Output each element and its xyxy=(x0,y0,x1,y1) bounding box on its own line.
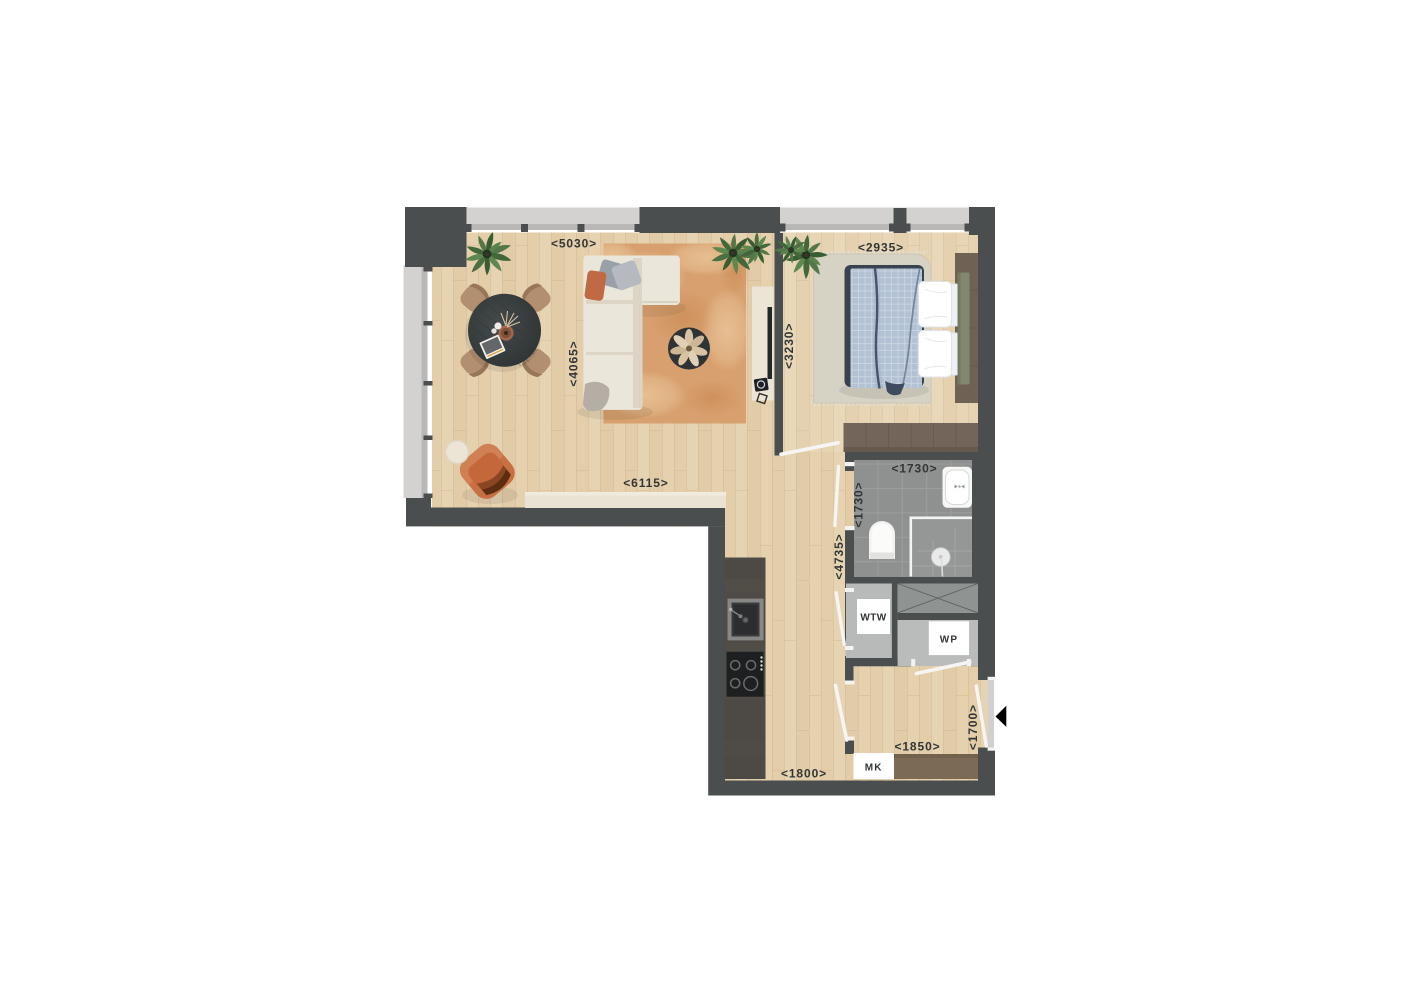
svg-text:<4735>: <4735> xyxy=(832,533,846,579)
svg-text:<5030>: <5030> xyxy=(551,237,597,251)
svg-text:<1850>: <1850> xyxy=(894,740,940,754)
svg-text:<3230>: <3230> xyxy=(782,323,796,369)
svg-text:<2935>: <2935> xyxy=(858,241,904,255)
svg-text:WTW: WTW xyxy=(860,613,886,624)
svg-text:<4065>: <4065> xyxy=(567,340,581,386)
svg-text:<1800>: <1800> xyxy=(781,767,827,781)
svg-text:<1730>: <1730> xyxy=(891,461,937,475)
svg-text:WP: WP xyxy=(940,635,959,646)
svg-text:MK: MK xyxy=(865,762,883,773)
svg-text:<1730>: <1730> xyxy=(851,482,865,528)
svg-text:<6115>: <6115> xyxy=(623,476,668,490)
svg-text:<1700>: <1700> xyxy=(966,704,980,750)
